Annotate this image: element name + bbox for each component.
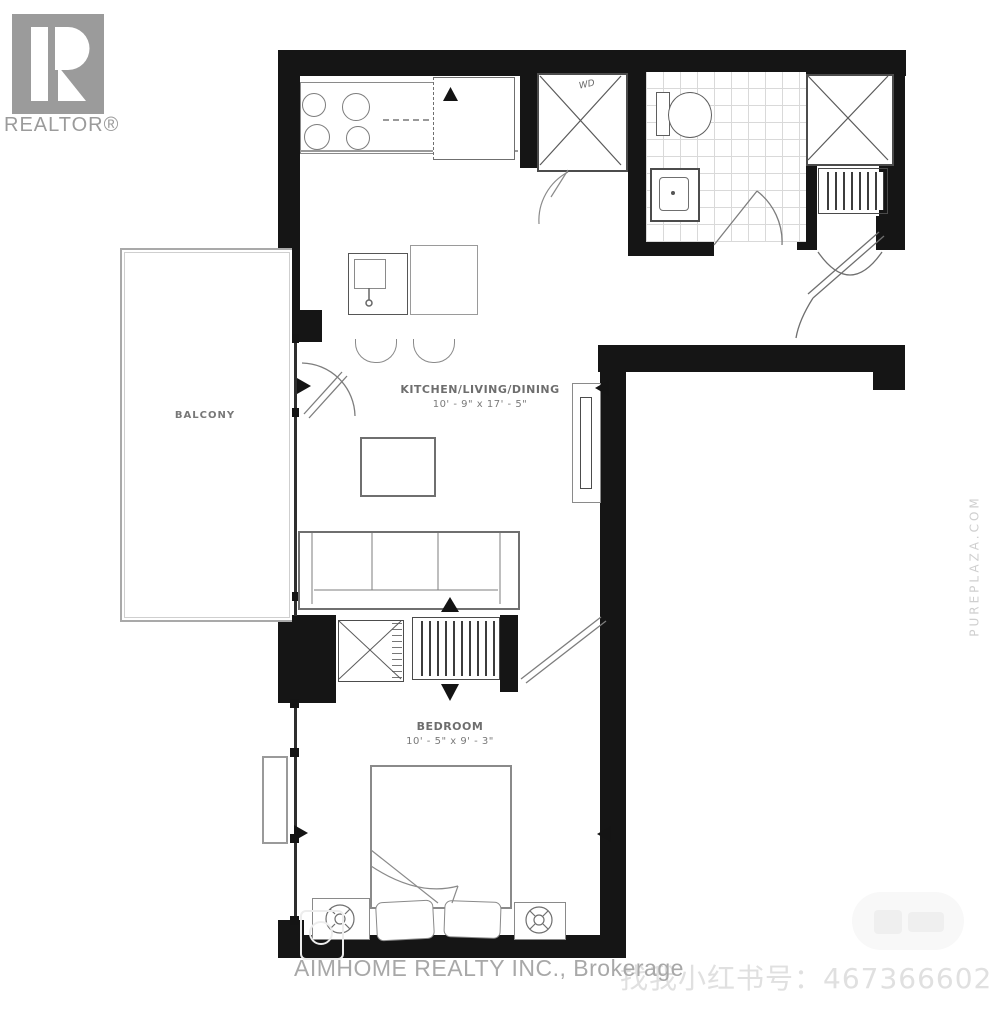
wall-right-main [600,345,626,958]
stove-burner-icon [302,93,326,117]
wall-bath-bottom [628,240,714,256]
tv-icon [580,397,592,489]
fridge-icon [433,77,515,160]
stove-burner-icon [342,93,370,121]
window-mullion [290,748,299,757]
sofa [298,531,520,610]
sink-drain-icon [671,191,675,195]
kitchen-living-dining-label: KITCHEN/LIVING/DINING [370,383,590,396]
side-watermark: PUREPLAZA.COM [968,479,984,654]
door-marker-icon [441,684,459,701]
balcony-label: BALCONY [150,410,260,421]
coffee-table [360,437,436,497]
dining-table [410,245,478,315]
window-balcony-doors [294,338,297,616]
window-bedroom [294,703,297,925]
pillow-icon [443,900,501,939]
bay-window [262,756,288,844]
bed [370,765,512,909]
wall-left-mid [278,615,336,703]
stove-burner-icon [346,126,370,150]
pillow-icon [375,900,435,942]
brokerage-footer: AIMHOME REALTY INC., Brokerage [294,955,684,982]
realtor-logo-icon [12,14,104,114]
balcony-door-arc [302,363,355,418]
island-sink-icon [354,259,386,289]
window-mullion [290,834,299,843]
wall-kitchen-laundry-divider [520,70,537,168]
wall-laundry-bath-divider [628,50,646,246]
nightstand [514,902,566,940]
wall-l-horizontal [598,345,878,372]
realtor-logo-label: REALTOR® [4,114,120,137]
window-mullion [290,699,299,708]
realtor-r-glyph [12,14,104,114]
floor-plan-page: REALTOR® BALCONY WD [0,0,1005,1024]
kitchen-living-dining-dimensions: 10' - 9" x 17' - 5" [370,399,590,410]
bedroom-door-leaf [521,617,606,683]
laundry-door-arc [539,170,568,224]
window-mullion [290,916,299,925]
wall-l-step [873,345,905,390]
bedroom-label: BEDROOM [360,720,540,733]
wall-marker-icon [297,378,311,394]
dishwasher-dashes [383,119,429,121]
wall-entry-pillar [876,216,905,250]
wall-closet-pillar [500,615,518,692]
toilet-icon [668,92,712,138]
video-app-watermark-badge [852,892,964,950]
shower-icon [806,74,894,166]
bedroom-dimensions: 10' - 5" x 9' - 3" [360,736,540,747]
stove-burner-icon [304,124,330,150]
entry-closet-rod [818,168,888,214]
balcony-area [120,248,292,622]
chair-icon [413,339,455,363]
cabinet-hatch [392,622,402,678]
camera-watermark-icon [300,910,344,960]
chair-icon [355,339,397,363]
bedroom-closet-rod [412,617,500,680]
